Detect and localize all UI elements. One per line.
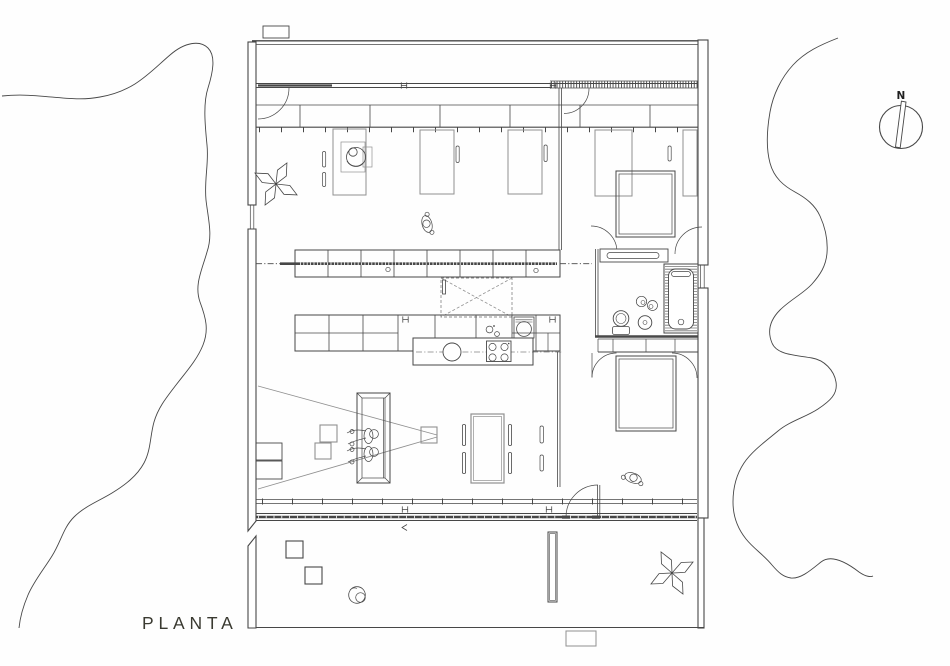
roof-stack-box [263,26,289,38]
terrace-stool [286,541,303,558]
wall-right-terrace [698,518,704,628]
dining-chair [462,425,465,446]
toilet [613,311,630,335]
wall-left-upper [248,42,256,205]
radiator-bar [323,152,326,168]
wardrobe-handle [456,146,459,163]
wardrobe-handle [668,146,671,161]
sun-hat [349,587,366,604]
south-facade [256,500,697,531]
plan-title: PLANTA [142,613,238,633]
projection-cone [258,386,437,489]
door-handle-icon [546,506,551,512]
bed-1 [616,171,675,237]
butterfly-chair [255,163,298,206]
terrace [286,532,694,603]
kitchen-counter [295,315,562,365]
washbasin [638,316,652,330]
terrace-step [566,631,596,646]
dining-chair [462,453,465,474]
site-contour-left [2,43,213,628]
radiator-bar [323,173,326,187]
terrace-stool [305,567,322,584]
towel-rolls [636,296,657,310]
vanity-bench [600,249,668,262]
dining-table [462,414,511,483]
side-table [320,425,337,442]
wall-cabinet [256,461,282,479]
slide-direction-arrow [402,525,407,531]
desk-2 [420,130,454,194]
floor-plan-canvas: N [0,0,950,666]
open-door [566,485,600,517]
office-zone [255,129,672,236]
butterfly-chair [650,551,695,596]
brise-soleil-hatch [550,81,698,88]
coffee-machine [486,325,499,336]
sofa [357,393,390,483]
dining-chair [508,425,511,446]
wall-right-lower [698,288,708,518]
shelving-row-upper [256,250,592,277]
bathroom [595,249,698,337]
wardrobe-panel [683,130,697,196]
overhead-skylight-dashed [441,278,512,317]
side-table [315,443,331,459]
door-handle-icon [550,316,555,322]
bedroom-1 [559,88,702,254]
walking-person [621,469,646,486]
wall-left-lower [248,229,256,531]
living-zone [256,386,543,489]
door-swing-arc [564,89,589,114]
desk-1 [333,129,366,195]
door-handle-icon [402,506,407,512]
door-swing-arc [591,226,617,252]
stove [487,341,512,362]
door-swing-arc [592,353,617,378]
wall-right-upper [698,40,708,265]
wardrobe-band [256,105,698,130]
wardrobe-handle [544,145,547,162]
bathtub [664,264,698,333]
compass-needle-icon [896,101,907,148]
door-swing-arc [258,88,289,119]
planter [548,532,557,602]
door-handle-icon [403,316,408,322]
north-indicator: N [880,90,923,149]
desk-3 [508,130,542,194]
north-facade [256,81,698,119]
bed-2 [616,356,676,431]
wardrobe [595,130,632,196]
wall-cabinet [256,443,282,460]
site-contour-right [733,38,873,578]
sink [443,343,461,361]
compass-north-label: N [897,90,906,102]
office-chair-with-person [341,142,372,172]
wall-left-terrace [248,536,256,628]
oven [514,317,534,338]
radiator-bar [540,455,543,471]
radiator-bar [540,426,543,443]
walking-person [419,212,434,237]
dining-chair [508,453,511,474]
bedroom-2 [558,339,699,517]
